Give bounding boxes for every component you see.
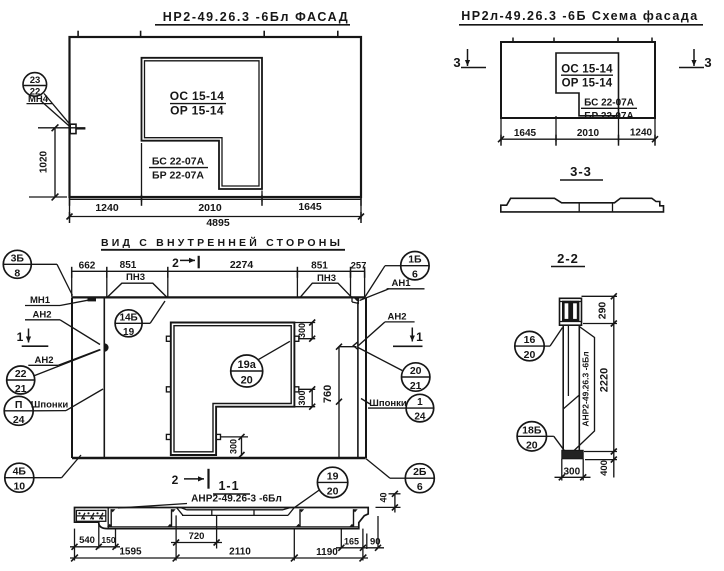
svg-text:14Б: 14Б <box>119 312 137 323</box>
svg-text:П: П <box>15 399 23 411</box>
svg-text:257: 257 <box>351 260 367 271</box>
svg-text:1: 1 <box>417 397 423 408</box>
svg-text:1240: 1240 <box>630 128 653 139</box>
svg-text:24: 24 <box>414 412 426 423</box>
svg-text:2110: 2110 <box>229 547 251 558</box>
svg-text:2: 2 <box>172 473 179 487</box>
svg-text:БР 22-07А: БР 22-07А <box>584 111 633 122</box>
svg-text:АНР2-49.26.3 -6Бл: АНР2-49.26.3 -6Бл <box>581 351 591 426</box>
svg-text:90: 90 <box>370 537 381 548</box>
svg-text:1645: 1645 <box>514 128 537 139</box>
svg-text:22: 22 <box>15 368 27 380</box>
svg-text:4895: 4895 <box>206 217 230 229</box>
svg-text:16: 16 <box>524 334 536 346</box>
svg-text:ОР 15-14: ОР 15-14 <box>562 78 613 90</box>
svg-text:1: 1 <box>17 330 24 344</box>
svg-text:540: 540 <box>79 535 95 546</box>
svg-text:300: 300 <box>563 467 580 478</box>
svg-text:150: 150 <box>101 535 115 545</box>
svg-text:165: 165 <box>344 537 359 547</box>
svg-text:2Б: 2Б <box>413 466 427 478</box>
svg-text:ОС 15-14: ОС 15-14 <box>561 64 613 76</box>
svg-text:3Б: 3Б <box>11 252 25 264</box>
svg-text:ПН3: ПН3 <box>317 273 336 284</box>
svg-text:3: 3 <box>704 55 711 70</box>
svg-text:4Б: 4Б <box>13 466 27 478</box>
svg-text:19: 19 <box>123 327 135 338</box>
svg-text:18Б: 18Б <box>522 424 542 436</box>
svg-text:БС 22-07А: БС 22-07А <box>584 98 634 109</box>
svg-text:ВИД С ВНУТРЕННЕЙ СТОРОНЫ: ВИД С ВНУТРЕННЕЙ СТОРОНЫ <box>101 236 343 249</box>
svg-text:АН2: АН2 <box>387 312 406 323</box>
svg-text:АН2: АН2 <box>34 355 53 366</box>
svg-text:19а: 19а <box>238 359 257 371</box>
svg-text:Шпонки: Шпонки <box>31 400 69 411</box>
svg-text:40: 40 <box>379 492 389 502</box>
svg-text:2010: 2010 <box>577 128 600 139</box>
svg-text:10: 10 <box>13 481 25 493</box>
svg-text:23: 23 <box>30 75 41 86</box>
svg-text:БР 22-07А: БР 22-07А <box>152 170 204 182</box>
svg-text:300: 300 <box>297 323 307 338</box>
svg-text:3: 3 <box>453 55 460 70</box>
svg-text:662: 662 <box>79 261 96 272</box>
svg-text:1190: 1190 <box>316 547 338 558</box>
svg-text:НР2-49.26.3 -6Бл ФАСАД: НР2-49.26.3 -6Бл ФАСАД <box>163 10 350 24</box>
svg-text:АН2: АН2 <box>32 310 51 321</box>
svg-text:АН1: АН1 <box>391 278 411 289</box>
svg-text:20: 20 <box>241 375 253 387</box>
svg-text:6: 6 <box>412 269 418 281</box>
svg-text:АНР2-49.26-3 -6Бл: АНР2-49.26-3 -6Бл <box>191 494 282 505</box>
svg-text:19: 19 <box>327 470 339 482</box>
svg-text:851: 851 <box>120 260 137 271</box>
svg-text:6: 6 <box>417 481 423 493</box>
svg-text:290: 290 <box>597 302 609 320</box>
svg-text:8: 8 <box>14 267 20 279</box>
svg-text:300: 300 <box>297 390 307 405</box>
svg-text:20: 20 <box>410 365 422 377</box>
svg-text:1-1: 1-1 <box>218 479 239 493</box>
svg-text:1Б: 1Б <box>408 254 422 266</box>
svg-text:1020: 1020 <box>39 150 50 173</box>
svg-text:2: 2 <box>172 256 179 270</box>
svg-text:20: 20 <box>327 485 339 497</box>
svg-text:2-2: 2-2 <box>557 251 579 266</box>
svg-text:ОР 15-14: ОР 15-14 <box>170 104 224 118</box>
svg-text:400: 400 <box>599 460 610 476</box>
svg-text:1240: 1240 <box>95 202 119 214</box>
svg-text:3-3: 3-3 <box>570 164 592 179</box>
svg-text:1595: 1595 <box>119 547 142 558</box>
svg-text:21: 21 <box>15 383 27 395</box>
svg-text:24: 24 <box>13 414 25 426</box>
svg-text:20: 20 <box>526 439 538 451</box>
svg-text:2274: 2274 <box>230 259 254 271</box>
svg-text:ОС 15-14: ОС 15-14 <box>170 89 224 103</box>
svg-text:1: 1 <box>416 330 423 344</box>
svg-text:Шпонки: Шпонки <box>369 398 407 409</box>
svg-text:21: 21 <box>410 380 422 392</box>
svg-text:БС 22-07А: БС 22-07А <box>152 156 205 168</box>
svg-text:ПН3: ПН3 <box>126 272 145 283</box>
svg-text:2010: 2010 <box>198 202 222 214</box>
svg-text:20: 20 <box>524 349 536 361</box>
svg-text:760: 760 <box>322 385 334 403</box>
svg-text:МН1: МН1 <box>30 295 51 306</box>
svg-text:851: 851 <box>311 261 328 272</box>
svg-text:2220: 2220 <box>599 368 611 392</box>
svg-text:720: 720 <box>189 531 205 542</box>
svg-text:300: 300 <box>229 439 239 454</box>
svg-text:НР2л-49.26.3 -6Б Схема фасад: НР2л-49.26.3 -6Б Схема фасада <box>461 9 698 23</box>
svg-text:1645: 1645 <box>298 201 322 213</box>
